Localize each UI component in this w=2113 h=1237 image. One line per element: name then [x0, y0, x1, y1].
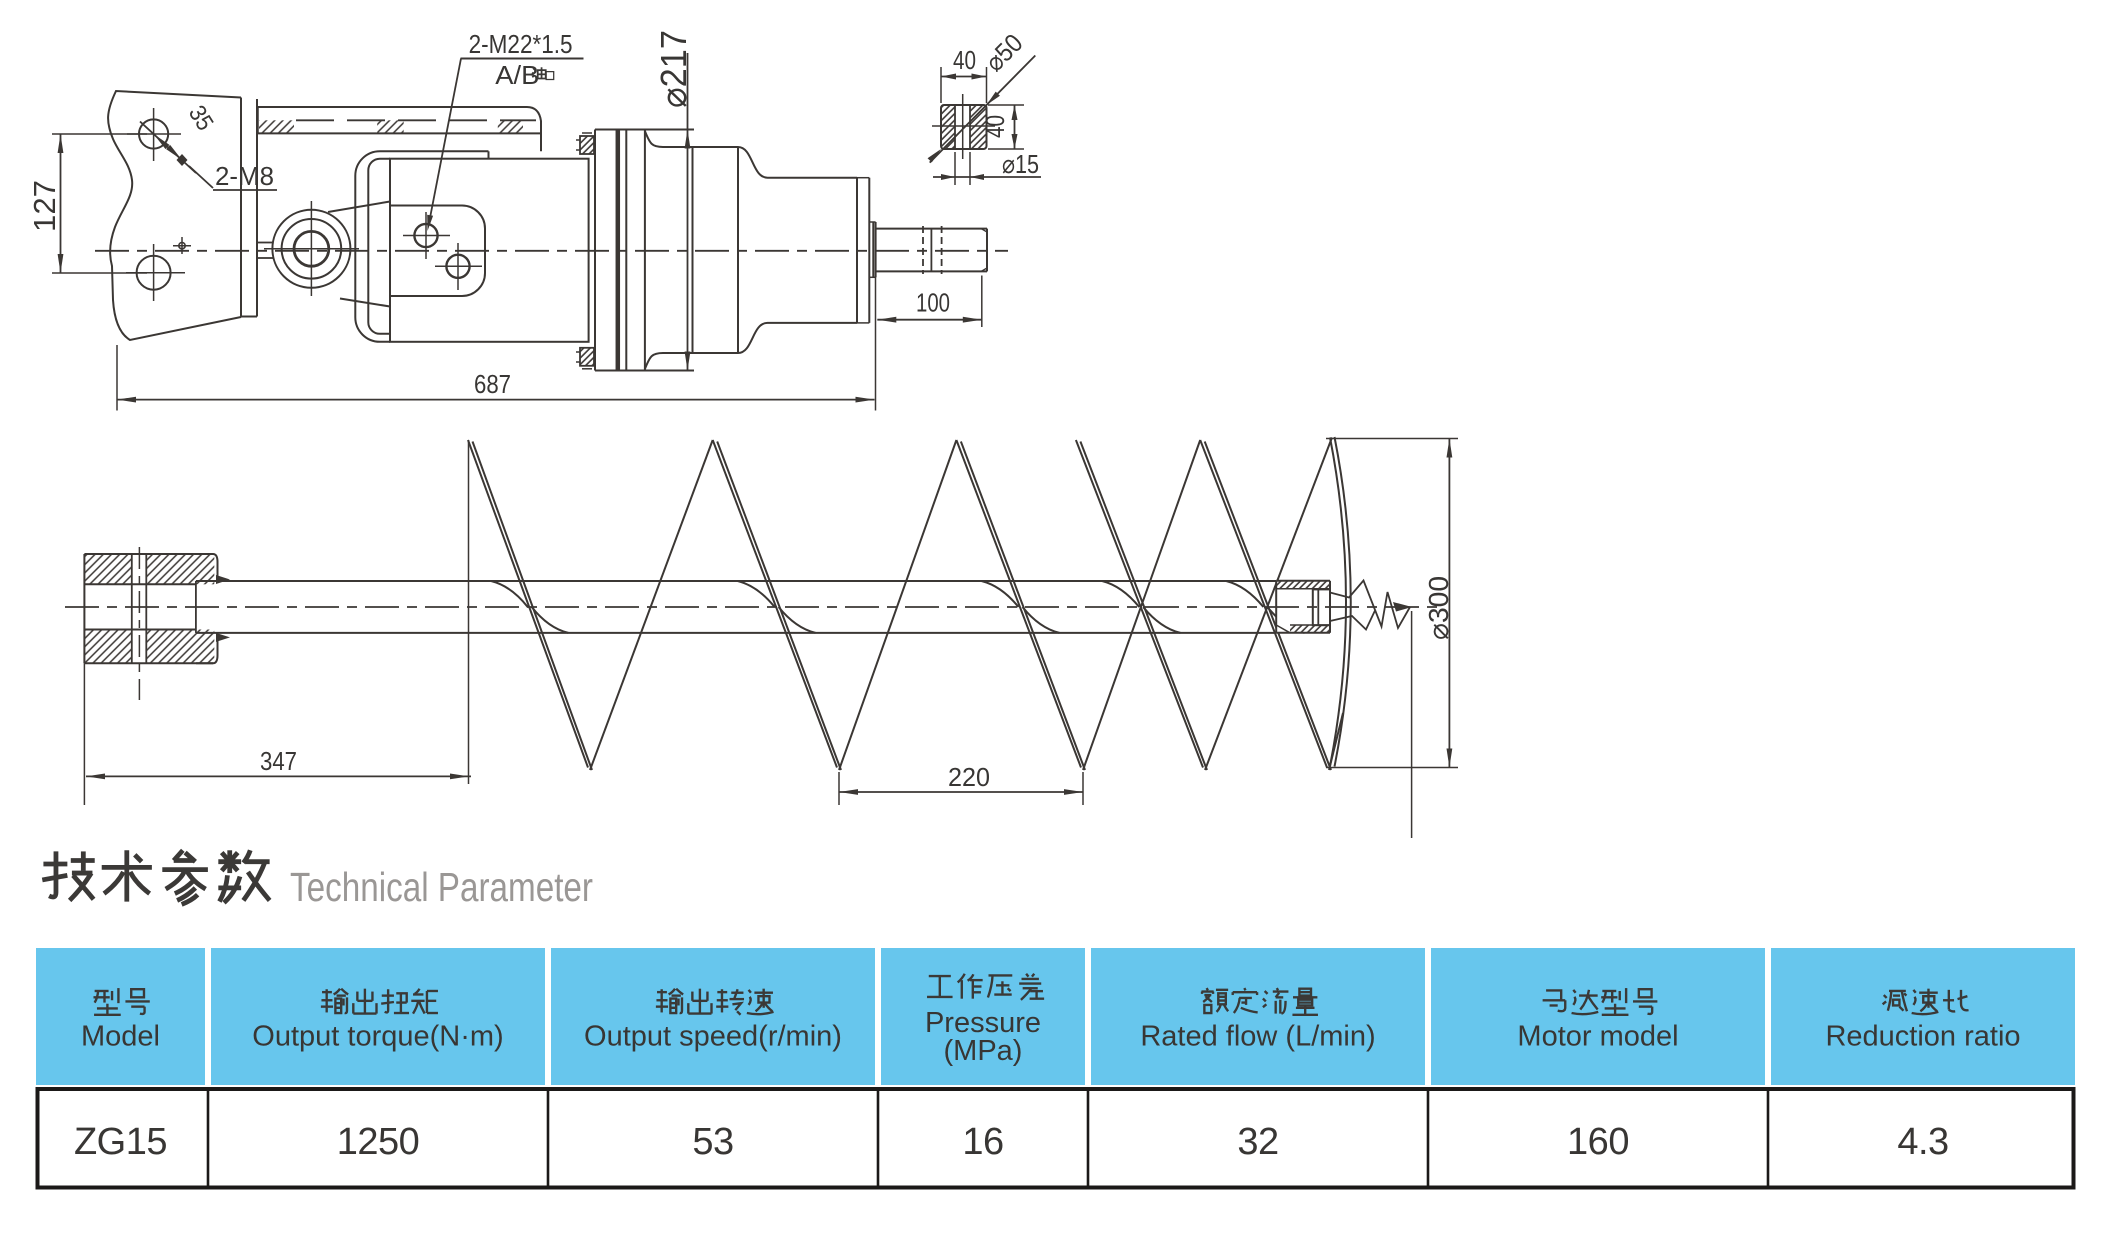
svg-text:Output torque(N·m): Output torque(N·m)	[252, 1021, 503, 1053]
svg-text:Pressure: Pressure	[925, 1007, 1041, 1039]
svg-text:Technical Parameter: Technical Parameter	[290, 864, 593, 910]
svg-text:16: 16	[962, 1121, 1003, 1163]
svg-text:Motor model: Motor model	[1517, 1021, 1678, 1053]
svg-text:35: 35	[183, 101, 219, 136]
svg-text:⌀15: ⌀15	[1002, 149, 1039, 179]
svg-text:A/B: A/B	[495, 60, 539, 90]
svg-text:4.3: 4.3	[1897, 1121, 1948, 1163]
svg-text:2-M22*1.5: 2-M22*1.5	[469, 29, 573, 59]
svg-text:⌀217: ⌀217	[653, 30, 694, 108]
svg-text:⌀300: ⌀300	[1423, 576, 1454, 640]
svg-text:32: 32	[1237, 1121, 1278, 1163]
svg-text:ZG15: ZG15	[74, 1121, 167, 1163]
svg-text:347: 347	[260, 746, 297, 776]
svg-text:Model: Model	[81, 1021, 160, 1053]
svg-text:160: 160	[1567, 1121, 1629, 1163]
svg-text:127: 127	[27, 180, 62, 232]
svg-text:220: 220	[948, 762, 990, 792]
svg-text:100: 100	[916, 288, 950, 318]
svg-text:687: 687	[474, 369, 511, 399]
svg-text:(MPa): (MPa)	[944, 1035, 1023, 1067]
svg-text:53: 53	[692, 1121, 733, 1163]
svg-text:40: 40	[980, 115, 1010, 138]
svg-text:1250: 1250	[337, 1121, 420, 1163]
svg-text:2-M8: 2-M8	[215, 161, 274, 191]
svg-text:Output speed(r/min): Output speed(r/min)	[584, 1021, 842, 1053]
svg-text:Reduction ratio: Reduction ratio	[1825, 1021, 2020, 1053]
svg-text:Rated flow (L/min): Rated flow (L/min)	[1140, 1021, 1375, 1053]
svg-text:40: 40	[953, 45, 976, 75]
